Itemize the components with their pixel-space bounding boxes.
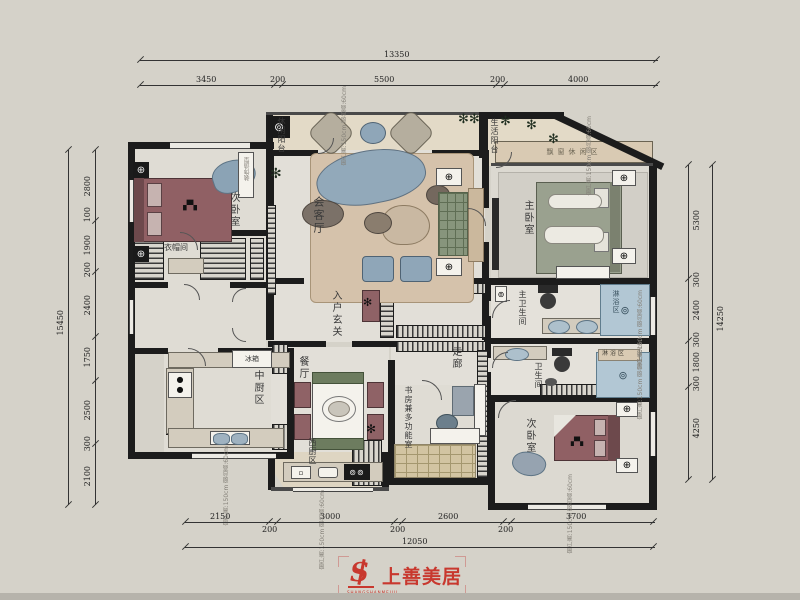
nightstand: ⊕ xyxy=(612,248,636,264)
wardrobe xyxy=(250,238,264,280)
logo-icon: S xyxy=(346,558,376,588)
wardrobe xyxy=(200,238,246,280)
desk xyxy=(452,386,474,416)
sleeping-figure xyxy=(548,194,602,209)
toilet xyxy=(552,348,572,356)
bay-window-label: 飘窗休闲区 xyxy=(495,141,653,163)
tatami-cabinet xyxy=(394,444,476,478)
dimension-line xyxy=(688,165,689,480)
dim-label: 1900 xyxy=(83,235,92,255)
plant-icon: ✻ xyxy=(500,114,511,129)
wall xyxy=(484,338,656,344)
dim-label: 3000 xyxy=(320,512,340,521)
dim-label: 2600 xyxy=(438,512,458,521)
room-label-bedroom-top: 次卧室 xyxy=(228,192,238,228)
dim-label: 2800 xyxy=(83,176,92,196)
dim-label: 200 xyxy=(262,525,277,534)
fridge: 冰箱 xyxy=(232,350,272,368)
bath-mat xyxy=(545,378,557,386)
dim-label: 2500 xyxy=(83,400,92,420)
dim-label: 5300 xyxy=(692,210,701,230)
wall xyxy=(649,163,657,510)
room-label-study: 书房兼多功能室 xyxy=(404,386,412,449)
room-label-chinese-kitchen: 中厨区 xyxy=(252,370,262,406)
logo-icon-underline xyxy=(348,586,374,588)
window-note: 窗户高:150cm 窗台高:60cm xyxy=(585,116,594,195)
headboard xyxy=(608,415,620,461)
pillow xyxy=(147,212,162,236)
nightstand: ⊕ xyxy=(612,170,636,186)
dimension-line xyxy=(95,150,96,505)
dim-tick xyxy=(650,518,657,525)
wall xyxy=(128,282,168,288)
room-label-western-kitchen: 西厨区 xyxy=(308,438,316,465)
dim-tick xyxy=(653,81,660,88)
plant-icon: ✻ xyxy=(526,118,537,133)
balcony-table xyxy=(360,122,386,144)
cooktop: ●● xyxy=(168,372,192,398)
storage-cabinet xyxy=(396,325,486,338)
dim-label: 2400 xyxy=(692,300,701,320)
window xyxy=(650,412,656,456)
toilet xyxy=(554,356,570,372)
dim-label: 2150 xyxy=(210,512,230,521)
dimension-line xyxy=(185,522,655,523)
sink-basin xyxy=(505,348,529,361)
sink-basin xyxy=(548,320,570,334)
dim-label: 3450 xyxy=(196,75,216,84)
room-label-master-bath: 主卫生间 xyxy=(518,290,526,326)
wall xyxy=(128,348,168,354)
window-note: 窗户高:150cm 窗台高:60cm xyxy=(636,340,645,419)
toilet xyxy=(540,293,556,309)
dim-tick xyxy=(92,501,99,508)
logo-brand: 上善美居 xyxy=(382,562,462,589)
floor-plan: ⊕ ⊕ ▞▚ 装饰造型 次卧室 衣帽间 冰箱 ●● 中厨区 ⊕ ⊕ 会客厅 ✻ … xyxy=(0,0,800,600)
toilet xyxy=(538,285,558,293)
window xyxy=(129,300,134,334)
bed-decor: ▞▚ xyxy=(566,434,588,448)
decor-label: 装饰造型 xyxy=(243,157,252,181)
chair xyxy=(362,256,394,282)
dim-label: 5500 xyxy=(374,75,394,84)
window xyxy=(650,297,656,335)
tv-wall xyxy=(267,205,276,295)
nightstand: ⊕ xyxy=(133,246,149,262)
dining-chair xyxy=(294,382,311,408)
dim-label: 1750 xyxy=(83,347,92,367)
dimension-line xyxy=(68,150,69,505)
window xyxy=(192,453,276,459)
dim-label: 200 xyxy=(83,262,92,277)
table-runner xyxy=(312,438,364,450)
end-table: ⊕ xyxy=(436,258,462,276)
wall xyxy=(491,163,653,166)
logo: S 上善美居 SHANGSHANMEIJU xyxy=(338,556,466,596)
dining-chair xyxy=(367,382,384,408)
fridge-label: 冰箱 xyxy=(245,356,259,363)
storage-cabinet xyxy=(396,341,486,352)
dim-total-right: 14250 xyxy=(716,306,725,331)
window xyxy=(293,487,373,492)
dim-label: 100 xyxy=(83,207,92,222)
dim-label: 200 xyxy=(390,525,405,534)
pillow xyxy=(147,183,162,207)
room-floor xyxy=(134,282,266,352)
balcony-rail xyxy=(266,112,488,115)
window-note: 窗户高:150cm 窗台高:60cm xyxy=(318,490,327,569)
sleeping-figure xyxy=(544,226,604,244)
dimension-line xyxy=(712,165,713,480)
headboard xyxy=(134,178,144,242)
plant-icon: ✻ xyxy=(363,296,372,309)
room-label-dining: 餐厅 xyxy=(297,356,307,380)
room-label-bathroom: 卫生间 xyxy=(534,362,542,389)
room-label-master-bedroom: 主卧室 xyxy=(522,200,532,236)
pillow xyxy=(594,440,606,457)
dim-tick xyxy=(709,476,716,483)
plant-icon: ✻✻ xyxy=(458,112,480,127)
dim-tick xyxy=(653,56,660,63)
microwave: ▫ xyxy=(291,466,311,479)
page-bottom-strip xyxy=(0,593,800,600)
platter xyxy=(328,401,350,417)
wall xyxy=(388,478,495,485)
dim-label: 4250 xyxy=(692,418,701,438)
washbasin: ⊚ xyxy=(495,286,507,302)
dimension-line xyxy=(140,60,658,61)
cloakroom-bench xyxy=(168,258,204,274)
bed-decor: ▞▚ xyxy=(178,198,202,214)
table xyxy=(430,428,480,444)
dim-label: 2400 xyxy=(83,295,92,315)
dim-total-left: 15450 xyxy=(56,310,65,335)
plant-icon: ✻ xyxy=(270,166,282,182)
cooktop: ⊚⊚ xyxy=(344,464,370,480)
end-table: ⊕ xyxy=(436,168,462,186)
dim-total-bottom: 12050 xyxy=(402,537,427,546)
dim-total-top: 13350 xyxy=(384,50,409,59)
table-runner xyxy=(312,372,364,384)
dim-label: 1800 xyxy=(692,352,701,372)
decor-panel: 装饰造型 xyxy=(238,152,254,198)
room-label-entry: 入户玄关 xyxy=(330,290,340,338)
sofa xyxy=(438,192,468,256)
window xyxy=(170,142,250,149)
dim-tick xyxy=(650,543,657,550)
nightstand: ⊕ xyxy=(616,458,638,473)
room-label-corridor: 走廊 xyxy=(450,346,460,370)
dim-label: 3700 xyxy=(566,512,586,521)
tv-console xyxy=(492,198,499,270)
dimension-line xyxy=(185,547,655,548)
sink-basin xyxy=(576,320,598,334)
dim-label: 300 xyxy=(83,436,92,451)
wall xyxy=(488,398,495,510)
pillow xyxy=(594,419,606,436)
chair xyxy=(400,256,432,282)
sink-basin xyxy=(213,433,230,445)
dim-label: 300 xyxy=(692,272,701,287)
dim-tick xyxy=(685,476,692,483)
dim-tick xyxy=(65,501,72,508)
room-label-living: 会客厅 xyxy=(313,196,324,235)
window-note: 窗户高:150cm 窗台高:60cm xyxy=(340,86,349,165)
plant-icon: ✻ xyxy=(366,422,376,436)
dim-label: 300 xyxy=(692,376,701,391)
dining-chair xyxy=(294,414,311,440)
dim-label: 300 xyxy=(692,332,701,347)
kitchen-sink xyxy=(318,467,338,478)
shower-label-band: 淋浴区 xyxy=(598,349,640,361)
dim-label: 4000 xyxy=(568,75,588,84)
shower-label: 淋浴区 xyxy=(602,351,626,357)
side-table xyxy=(364,212,392,234)
room-label-leisure-balcony: 休闲阳台 xyxy=(277,117,285,153)
sink-basin xyxy=(231,433,248,445)
shower-label-master: 淋浴区 xyxy=(612,290,619,314)
dimension-line xyxy=(140,85,658,86)
dim-label: 2100 xyxy=(83,466,92,486)
nightstand: ⊕ xyxy=(616,402,638,417)
nightstand: ⊕ xyxy=(133,162,149,178)
room-label-bedroom-bottom: 次卧室 xyxy=(524,418,534,454)
dresser xyxy=(556,266,610,279)
dim-label: 200 xyxy=(498,525,513,534)
